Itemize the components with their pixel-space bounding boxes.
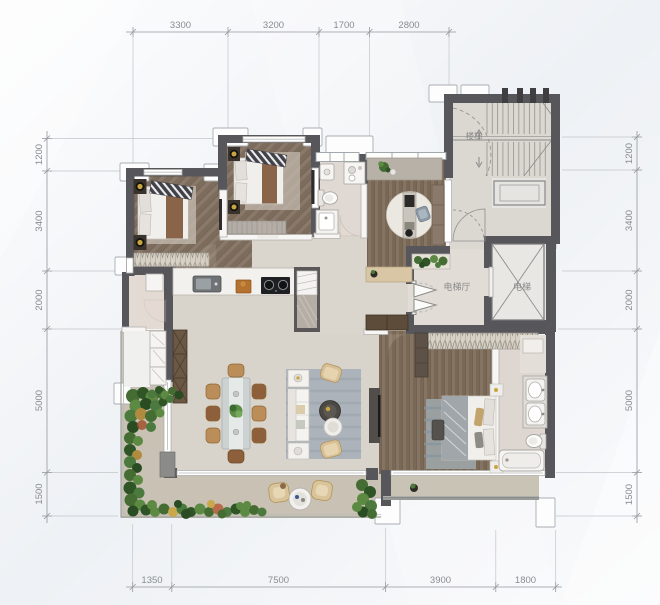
svg-text:1500: 1500 [624,484,635,505]
svg-text:楼梯: 楼梯 [465,131,483,141]
svg-text:1200: 1200 [624,143,635,164]
svg-text:3300: 3300 [170,20,191,31]
svg-text:7500: 7500 [268,575,289,586]
svg-text:1200: 1200 [34,144,45,165]
svg-text:5000: 5000 [34,390,45,411]
svg-text:5000: 5000 [624,390,635,411]
svg-text:3400: 3400 [624,210,635,231]
svg-text:2000: 2000 [34,289,45,310]
svg-text:1350: 1350 [141,575,162,586]
svg-text:电梯厅: 电梯厅 [443,281,470,292]
svg-text:1800: 1800 [515,575,536,586]
svg-text:3400: 3400 [34,210,45,231]
svg-text:2000: 2000 [624,289,635,310]
svg-text:1500: 1500 [34,483,45,504]
svg-text:3200: 3200 [263,20,284,31]
svg-text:2800: 2800 [398,20,419,31]
svg-text:电梯: 电梯 [513,281,531,292]
svg-text:3900: 3900 [430,575,451,586]
svg-text:1700: 1700 [333,20,354,31]
